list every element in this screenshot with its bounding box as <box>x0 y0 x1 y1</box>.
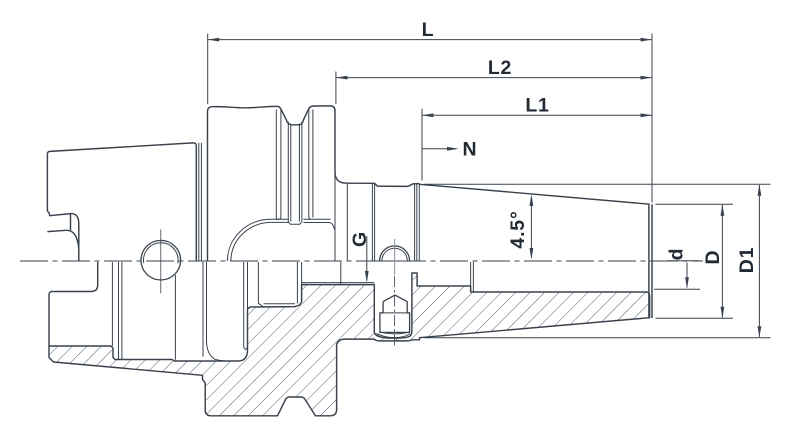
svg-text:L2: L2 <box>488 57 512 79</box>
svg-text:N: N <box>463 139 478 161</box>
svg-text:D1: D1 <box>736 247 758 274</box>
svg-text:d: d <box>666 248 688 261</box>
svg-text:L1: L1 <box>525 95 549 117</box>
svg-text:G: G <box>349 231 371 247</box>
svg-text:D: D <box>702 250 724 265</box>
svg-text:L: L <box>422 19 435 41</box>
svg-text:4.5°: 4.5° <box>507 210 529 248</box>
